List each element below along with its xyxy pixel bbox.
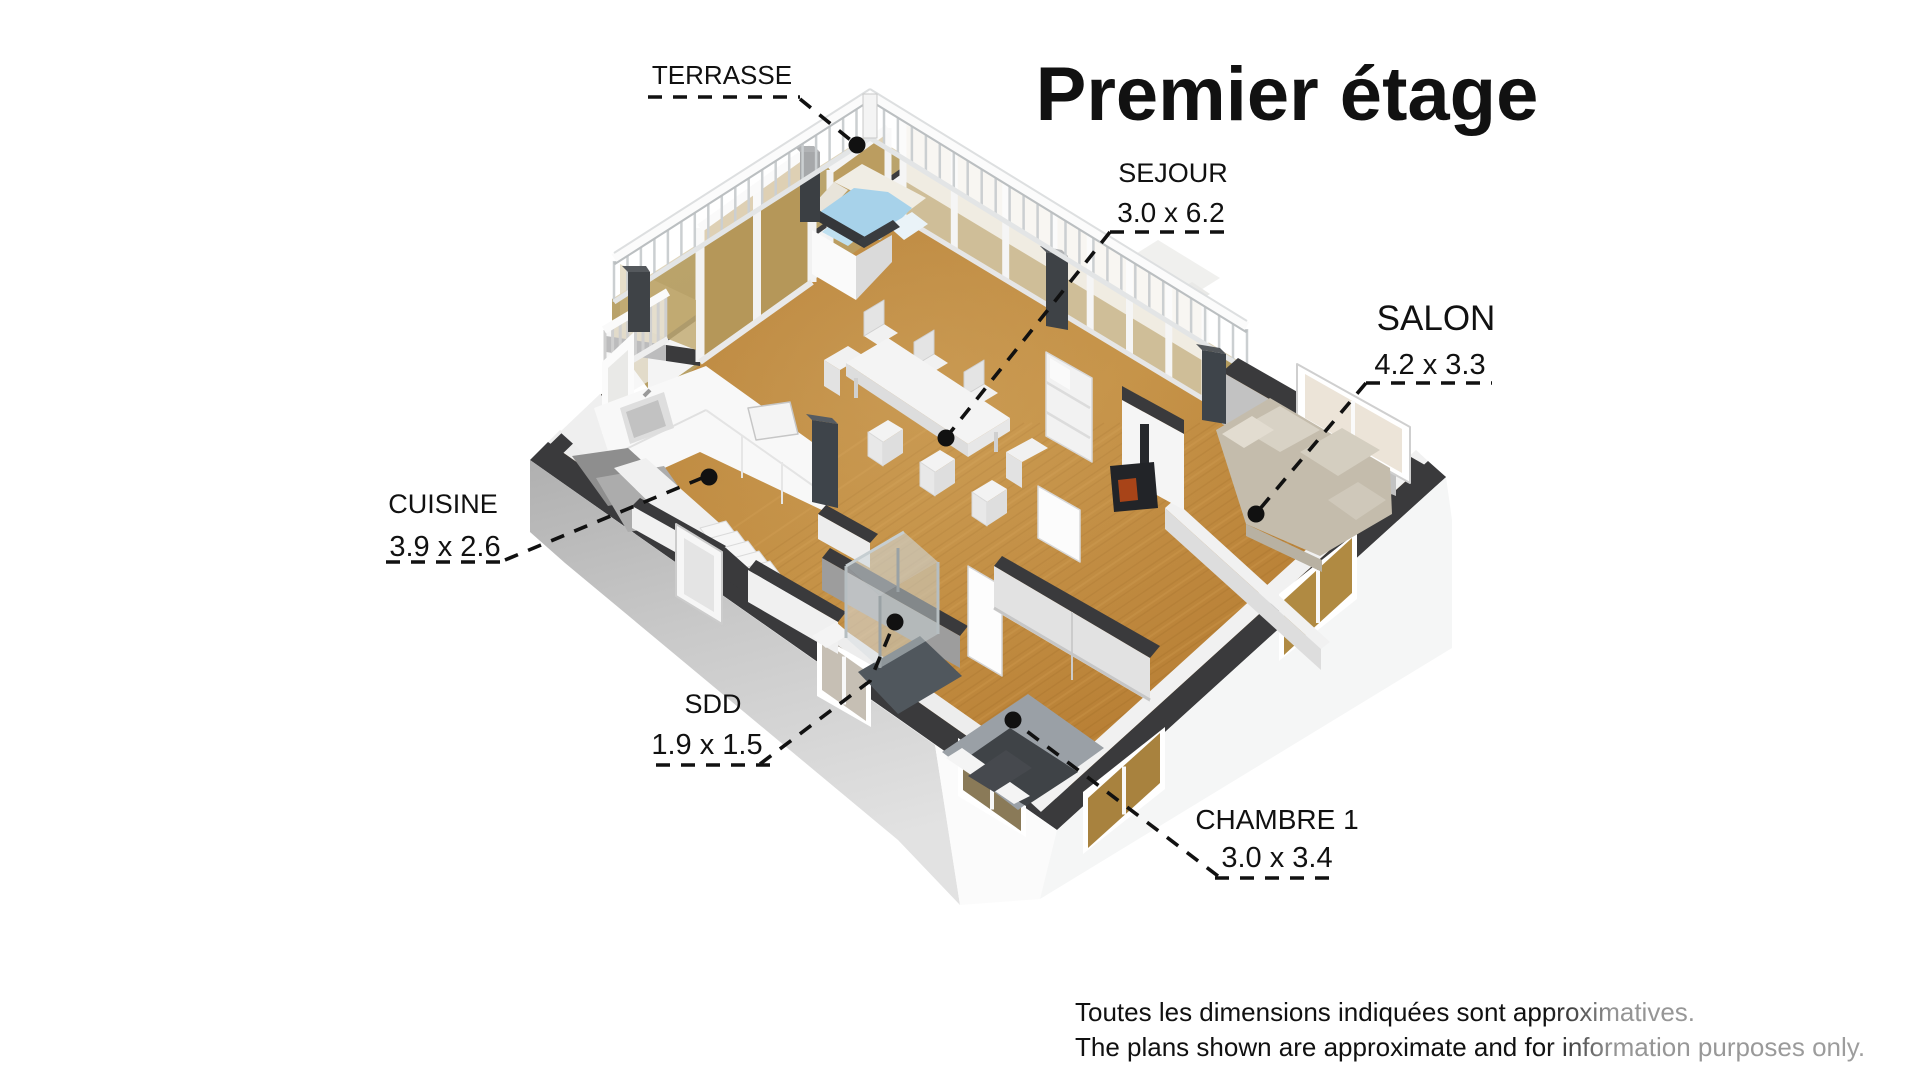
svg-text:3.0 x 6.2: 3.0 x 6.2	[1117, 197, 1224, 228]
svg-text:SDD: SDD	[684, 689, 741, 719]
svg-text:4.2 x 3.3: 4.2 x 3.3	[1374, 349, 1485, 381]
svg-text:3.9 x 2.6: 3.9 x 2.6	[389, 531, 500, 563]
svg-text:CUISINE: CUISINE	[388, 489, 498, 519]
svg-text:SEJOUR: SEJOUR	[1118, 158, 1228, 188]
svg-text:1.9 x 1.5: 1.9 x 1.5	[651, 729, 762, 761]
svg-text:3.0 x 3.4: 3.0 x 3.4	[1221, 842, 1332, 874]
svg-text:CHAMBRE 1: CHAMBRE 1	[1195, 804, 1358, 835]
svg-text:Premier étage: Premier étage	[1036, 52, 1539, 137]
svg-text:SALON: SALON	[1377, 299, 1496, 338]
svg-text:TERRASSE: TERRASSE	[652, 60, 792, 90]
